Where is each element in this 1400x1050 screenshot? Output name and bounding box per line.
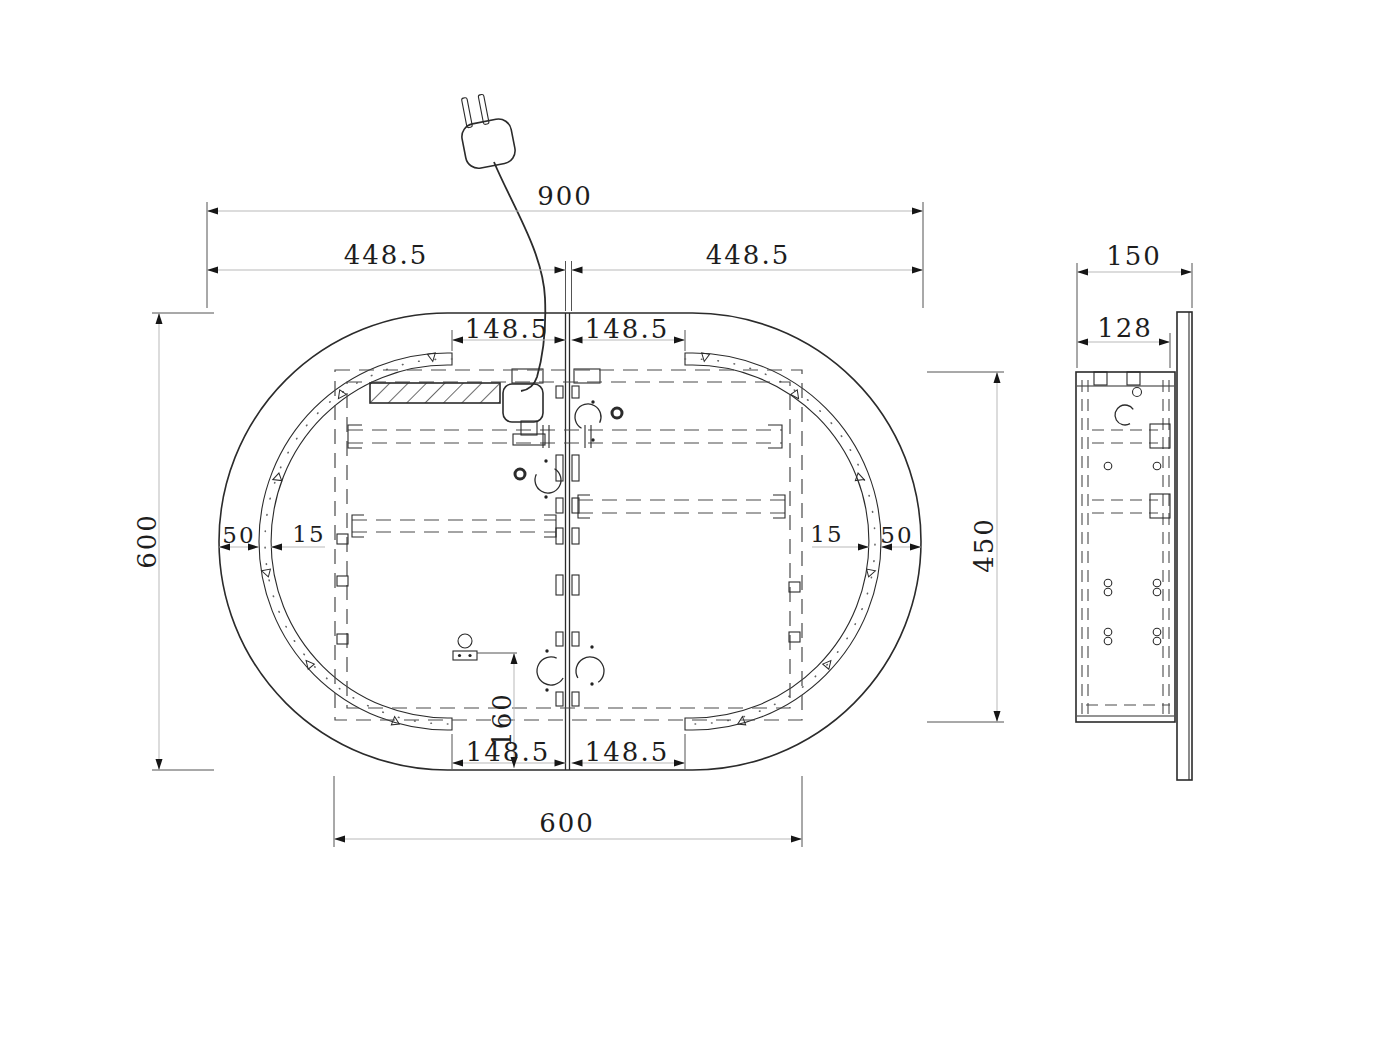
dim-label-half-width-right: 448.5 (706, 242, 790, 268)
dim-label-led-end-top-left: 148.5 (465, 316, 549, 342)
led-strip-right (685, 353, 881, 730)
dim-label-overall-width: 900 (537, 183, 593, 209)
backbox-dashed-frame (335, 370, 802, 720)
shelf-brackets (337, 425, 800, 644)
dim-label-led-width-left: 15 (292, 523, 325, 546)
side-dashed-details (1077, 380, 1174, 716)
hinge-blocks (556, 386, 579, 706)
side-mirror-glass (1177, 312, 1192, 780)
dim-label-edge-to-led-left: 50 (222, 524, 255, 547)
dim-label-led-end-bottom-left: 148.5 (466, 739, 550, 765)
dim-label-overall-depth: 150 (1106, 243, 1162, 269)
led-tick-marks-left (261, 353, 437, 725)
led-tick-marks-right (700, 353, 876, 725)
dim-label-led-width-right: 15 (810, 523, 843, 546)
driver-box (370, 383, 500, 403)
touch-sensor (453, 634, 477, 660)
power-plug (455, 90, 518, 170)
drawing-sheet: 900 448.5 448.5 148.5 148.5 600 50 15 15… (0, 0, 1400, 1050)
dim-label-overall-height: 600 (134, 513, 160, 569)
drawing-canvas (0, 0, 1400, 1050)
dim-label-led-end-bottom-right: 148.5 (585, 739, 669, 765)
dim-label-edge-to-led-right: 50 (880, 524, 913, 547)
dim-label-backbox-width: 600 (539, 810, 595, 836)
dim-label-backbox-depth: 128 (1097, 315, 1153, 341)
front-dimension-lines (152, 202, 1004, 847)
led-strip-left (259, 353, 452, 730)
dim-label-backbox-height: 450 (971, 517, 997, 573)
side-screw-holes (1104, 388, 1161, 645)
dim-label-half-width-left: 448.5 (344, 242, 428, 268)
dim-label-led-end-top-right: 148.5 (585, 316, 669, 342)
